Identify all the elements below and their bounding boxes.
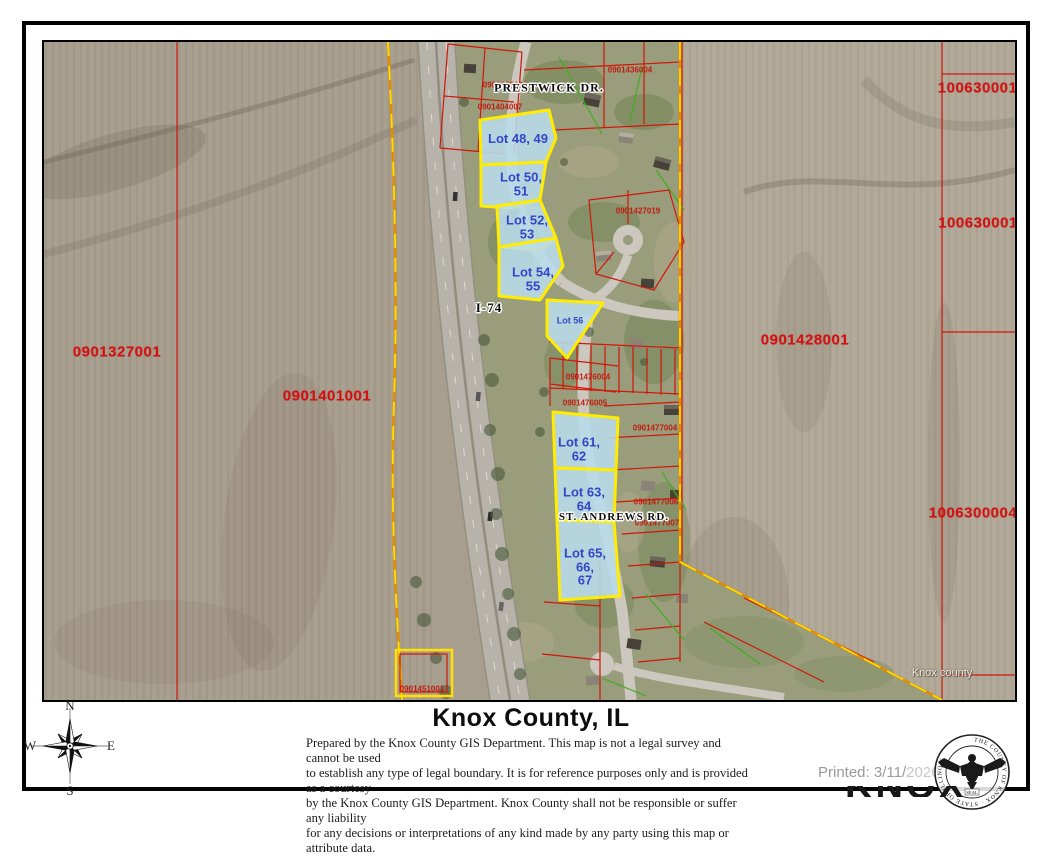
- disclaimer-line: Prepared by the Knox County GIS Departme…: [306, 736, 756, 766]
- county-seal: THE COUNTY OF KNOX · STATE OF ILLINOIS S…: [932, 732, 1012, 812]
- compass-west-label: W: [24, 738, 37, 753]
- lot-label: Lot 54,55: [512, 265, 554, 292]
- small-parcel-id-label: 0901451001: [400, 685, 445, 694]
- small-parcel-id-label: 0901427019: [616, 207, 661, 216]
- small-parcel-id-label: 0901404007: [478, 103, 523, 112]
- lot-label: Lot 48, 49: [488, 132, 548, 146]
- lot-label-line: Lot 50,: [500, 170, 542, 184]
- parcel-id-label: 0901401001: [283, 388, 371, 405]
- small-parcel-id-label: 0901476004: [566, 373, 611, 382]
- compass-rose: N E S W: [24, 698, 116, 798]
- lot-label-line: Lot 65,: [564, 547, 606, 561]
- compass-north-label: N: [65, 698, 75, 713]
- lot-label-line: 64: [563, 499, 605, 513]
- parcel-id-label: 1006300010: [938, 80, 1017, 97]
- small-parcel-id-label: 0901476005: [563, 399, 608, 408]
- lot-label: Lot 65,66,67: [564, 547, 606, 588]
- map-label-layer: 0901327001090140100109014280011006300010…: [44, 42, 1015, 700]
- disclaimer-text: Prepared by the Knox County GIS Departme…: [306, 736, 756, 856]
- compass-east-label: E: [107, 738, 115, 753]
- street-name-label: PRESTWICK DR.: [494, 81, 604, 96]
- map-title: Knox County, IL: [306, 704, 756, 733]
- lot-label-line: Lot 56: [557, 316, 584, 325]
- title-block: Knox County, IL Prepared by the Knox Cou…: [306, 704, 756, 856]
- lot-label-line: Lot 63,: [563, 485, 605, 499]
- small-parcel-id-label: 0901436004: [608, 66, 653, 75]
- lot-label-line: 66,: [564, 560, 606, 574]
- lot-label: Lot 61,62: [558, 435, 600, 462]
- street-name-label: ST. ANDREWS RD.: [559, 511, 669, 523]
- lot-label-line: Lot 52,: [506, 213, 548, 227]
- disclaimer-line: to establish any type of legal boundary.…: [306, 766, 756, 796]
- parcel-id-label: 1006300004: [929, 505, 1017, 522]
- lot-label-line: Lot 61,: [558, 435, 600, 449]
- lot-label: Lot 50,51: [500, 170, 542, 197]
- printed-date: Printed: 3/11/2026: [818, 764, 940, 781]
- lot-label-line: 51: [500, 184, 542, 198]
- aerial-watermark: Knox county: [912, 667, 973, 679]
- parcel-id-label: 0901327001: [73, 344, 161, 361]
- lot-label: Lot 52,53: [506, 213, 548, 240]
- lot-label-line: 53: [506, 227, 548, 241]
- lot-label-line: Lot 48, 49: [488, 132, 548, 146]
- lot-label-line: 67: [564, 574, 606, 588]
- lot-label-line: 62: [558, 449, 600, 463]
- small-parcel-id-label: 0901477004: [633, 424, 678, 433]
- lot-label: Lot 56: [557, 316, 584, 325]
- disclaimer-line: by the Knox County GIS Department. Knox …: [306, 796, 756, 826]
- parcel-id-label: 1006300011: [938, 215, 1017, 232]
- lot-label: Lot 63,64: [563, 485, 605, 512]
- compass-south-label: S: [66, 783, 73, 798]
- lot-label-line: Lot 54,: [512, 265, 554, 279]
- clipped-footer-text: KNOX CO: [845, 786, 1015, 797]
- small-parcel-id-label: 0901477006: [634, 498, 679, 507]
- map-viewport: 0901327001090140100109014280011006300010…: [42, 40, 1017, 702]
- printed-date-prefix: Printed: 3/11/: [818, 764, 906, 781]
- disclaimer-line: for any decisions or interpretations of …: [306, 826, 756, 856]
- parcel-id-label: 0901428001: [761, 332, 849, 349]
- street-name-label: I-74: [476, 300, 502, 316]
- lot-label-line: 55: [512, 279, 554, 293]
